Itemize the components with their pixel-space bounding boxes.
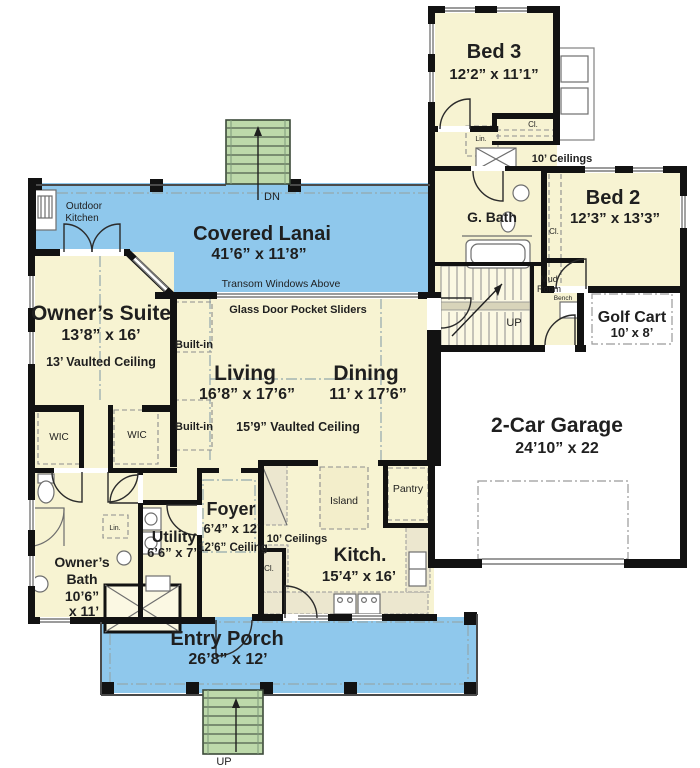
built-in-label: Built-in: [175, 421, 213, 433]
lanai-dims: 41’6” x 11’8”: [211, 246, 306, 263]
interior-stair: [441, 266, 530, 348]
bed3-dims: 12’2” x 11’1”: [449, 66, 538, 83]
pocket-slider-icon: [217, 292, 418, 299]
dining-dims: 11’ x 17’6”: [329, 386, 406, 403]
foyer-name: Foyer: [206, 499, 255, 519]
porch-column: [101, 682, 114, 695]
outdoor-kitchen-grill-icon: [34, 190, 56, 230]
golf-cart-dims: 10’ x 8’: [611, 325, 654, 340]
kitchen-name: Kitch.: [334, 545, 387, 566]
porch-column: [186, 682, 199, 695]
linen-label: Lin.: [475, 136, 486, 143]
gbath-sink-icon: [513, 185, 529, 201]
owners-bath-name2: Bath: [66, 571, 97, 587]
owners-bath-name1: Owner’s: [54, 554, 109, 570]
ceilings-10-label: 10’ Ceilings: [267, 533, 328, 545]
utility-dims: 6’6” x 7’: [147, 545, 197, 560]
owners-suite-name: Owner’s Suite: [31, 302, 171, 325]
bed3-floor: [432, 10, 557, 170]
entry-porch-dims: 26’8” x 12’: [188, 651, 267, 668]
up-label: UP: [216, 756, 231, 768]
range-icon: [334, 594, 356, 614]
lanai-name: Covered Lanai: [193, 223, 331, 245]
guest-bath-name: G. Bath: [467, 209, 517, 225]
wic-label: WIC: [49, 432, 68, 443]
transom-label: Transom Windows Above: [222, 278, 341, 290]
porch-column: [464, 682, 477, 695]
porch-column: [344, 682, 357, 695]
pantry-label: Pantry: [393, 483, 424, 495]
utility-name: Utility: [152, 529, 197, 546]
ceilings-10-label: 10’ Ceilings: [532, 153, 593, 165]
foyer-ceiling: 12’6” Ceiling: [198, 542, 268, 554]
closet-label: Cl.: [549, 227, 559, 236]
outdoor-kitchen-label2: Kitchen: [65, 213, 98, 224]
golf-cart-name: Golf Cart: [598, 309, 667, 326]
bed2-dims: 12’3” x 13’3”: [570, 210, 660, 227]
equipment-pads-icon: [556, 48, 594, 140]
linen-label: Lin.: [109, 525, 120, 532]
foyer-dims: 6’4” x 12’: [203, 521, 260, 536]
bed3-name: Bed 3: [467, 41, 521, 63]
floor-plan-page: Bed 3 12’2” x 11’1” Cl. Lin. 10’ Ceiling…: [0, 0, 700, 768]
built-in-label: Built-in: [175, 339, 213, 351]
island-label: Island: [330, 495, 358, 507]
floor-plan-drawing: Bed 3 12’2” x 11’1” Cl. Lin. 10’ Ceiling…: [0, 0, 700, 768]
bench-label: Bench: [554, 295, 573, 302]
garage-door-icon: [482, 555, 624, 568]
porch-stair-up: [203, 690, 263, 754]
owners-bath-dims1: 10’6”: [65, 588, 99, 604]
mud-room-name2: Room: [537, 284, 561, 294]
living-name: Living: [214, 362, 276, 385]
wic-label: WIC: [127, 430, 146, 441]
vaulted-159-label: 15’9” Vaulted Ceiling: [236, 420, 360, 434]
dn-label: DN: [264, 191, 280, 203]
garage-name: 2-Car Garage: [491, 414, 623, 437]
garage-parking-pad: [478, 481, 628, 559]
porch-column: [464, 612, 477, 625]
up-label: UP: [506, 317, 521, 329]
owners-suite-dims: 13’8” x 16’: [61, 327, 140, 344]
bath-sink2-icon: [117, 551, 131, 565]
closet-label: Cl.: [528, 120, 538, 129]
entry-porch-name: Entry Porch: [170, 628, 283, 650]
bed2-name: Bed 2: [586, 187, 640, 209]
utility-sink-icon: [146, 576, 170, 591]
glass-sliders-label: Glass Door Pocket Sliders: [229, 304, 367, 316]
dining-name: Dining: [333, 362, 398, 385]
toilet-icon: [38, 481, 54, 503]
owners-bath-dims2: x 11’: [69, 603, 99, 619]
outdoor-kitchen-label1: Outdoor: [66, 201, 103, 212]
mud-room-name1: Mud: [540, 274, 558, 284]
kitchen-dims: 15’4” x 16’: [322, 568, 396, 585]
owners-suite-ceiling: 13’ Vaulted Ceiling: [46, 355, 156, 369]
closet-label: Cl.: [264, 564, 274, 573]
garage-dims: 24’10” x 22: [515, 440, 599, 457]
living-dims: 16’8” x 17’6”: [199, 386, 295, 403]
